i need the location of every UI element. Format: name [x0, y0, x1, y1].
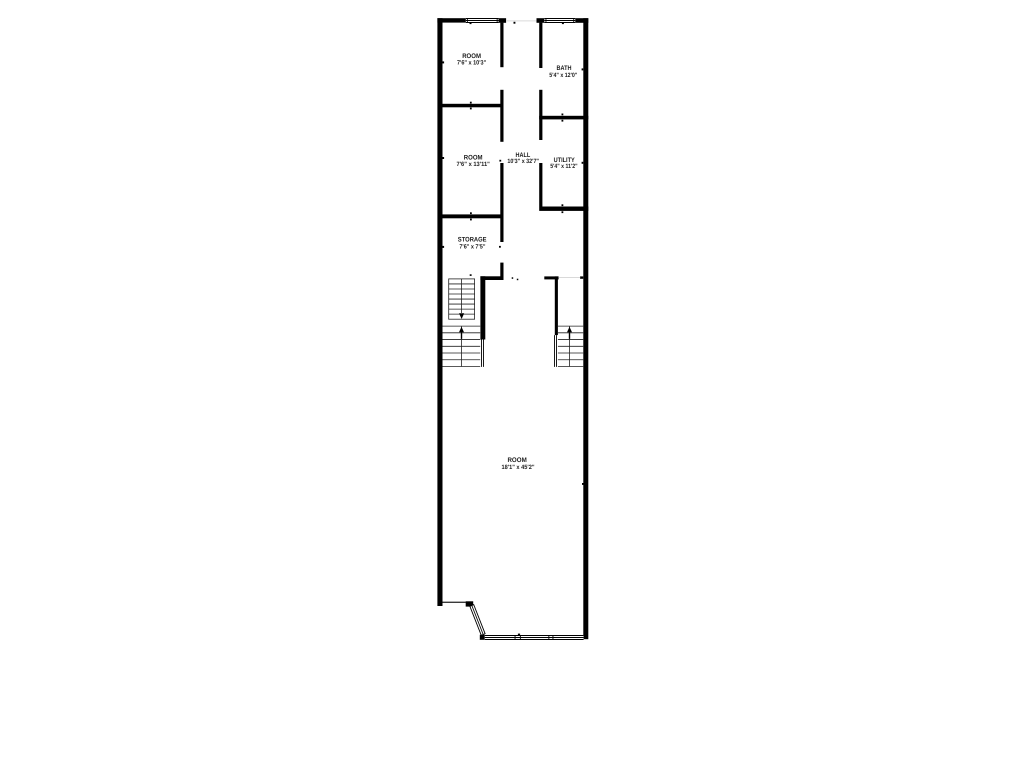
svg-text:18'1" x 45'2": 18'1" x 45'2" [502, 464, 535, 471]
svg-text:5'4" x 11'2": 5'4" x 11'2" [550, 163, 577, 170]
svg-text:10'3" x 32'7": 10'3" x 32'7" [507, 158, 539, 165]
svg-text:7'6" x 7'5": 7'6" x 7'5" [459, 244, 485, 251]
svg-text:7'6" x 10'3": 7'6" x 10'3" [457, 60, 486, 67]
svg-text:ROOM: ROOM [507, 457, 527, 464]
svg-text:STORAGE: STORAGE [458, 237, 487, 244]
svg-text:7'6" x 13'11": 7'6" x 13'11" [457, 161, 490, 168]
svg-text:5'4" x 12'0": 5'4" x 12'0" [549, 72, 577, 79]
